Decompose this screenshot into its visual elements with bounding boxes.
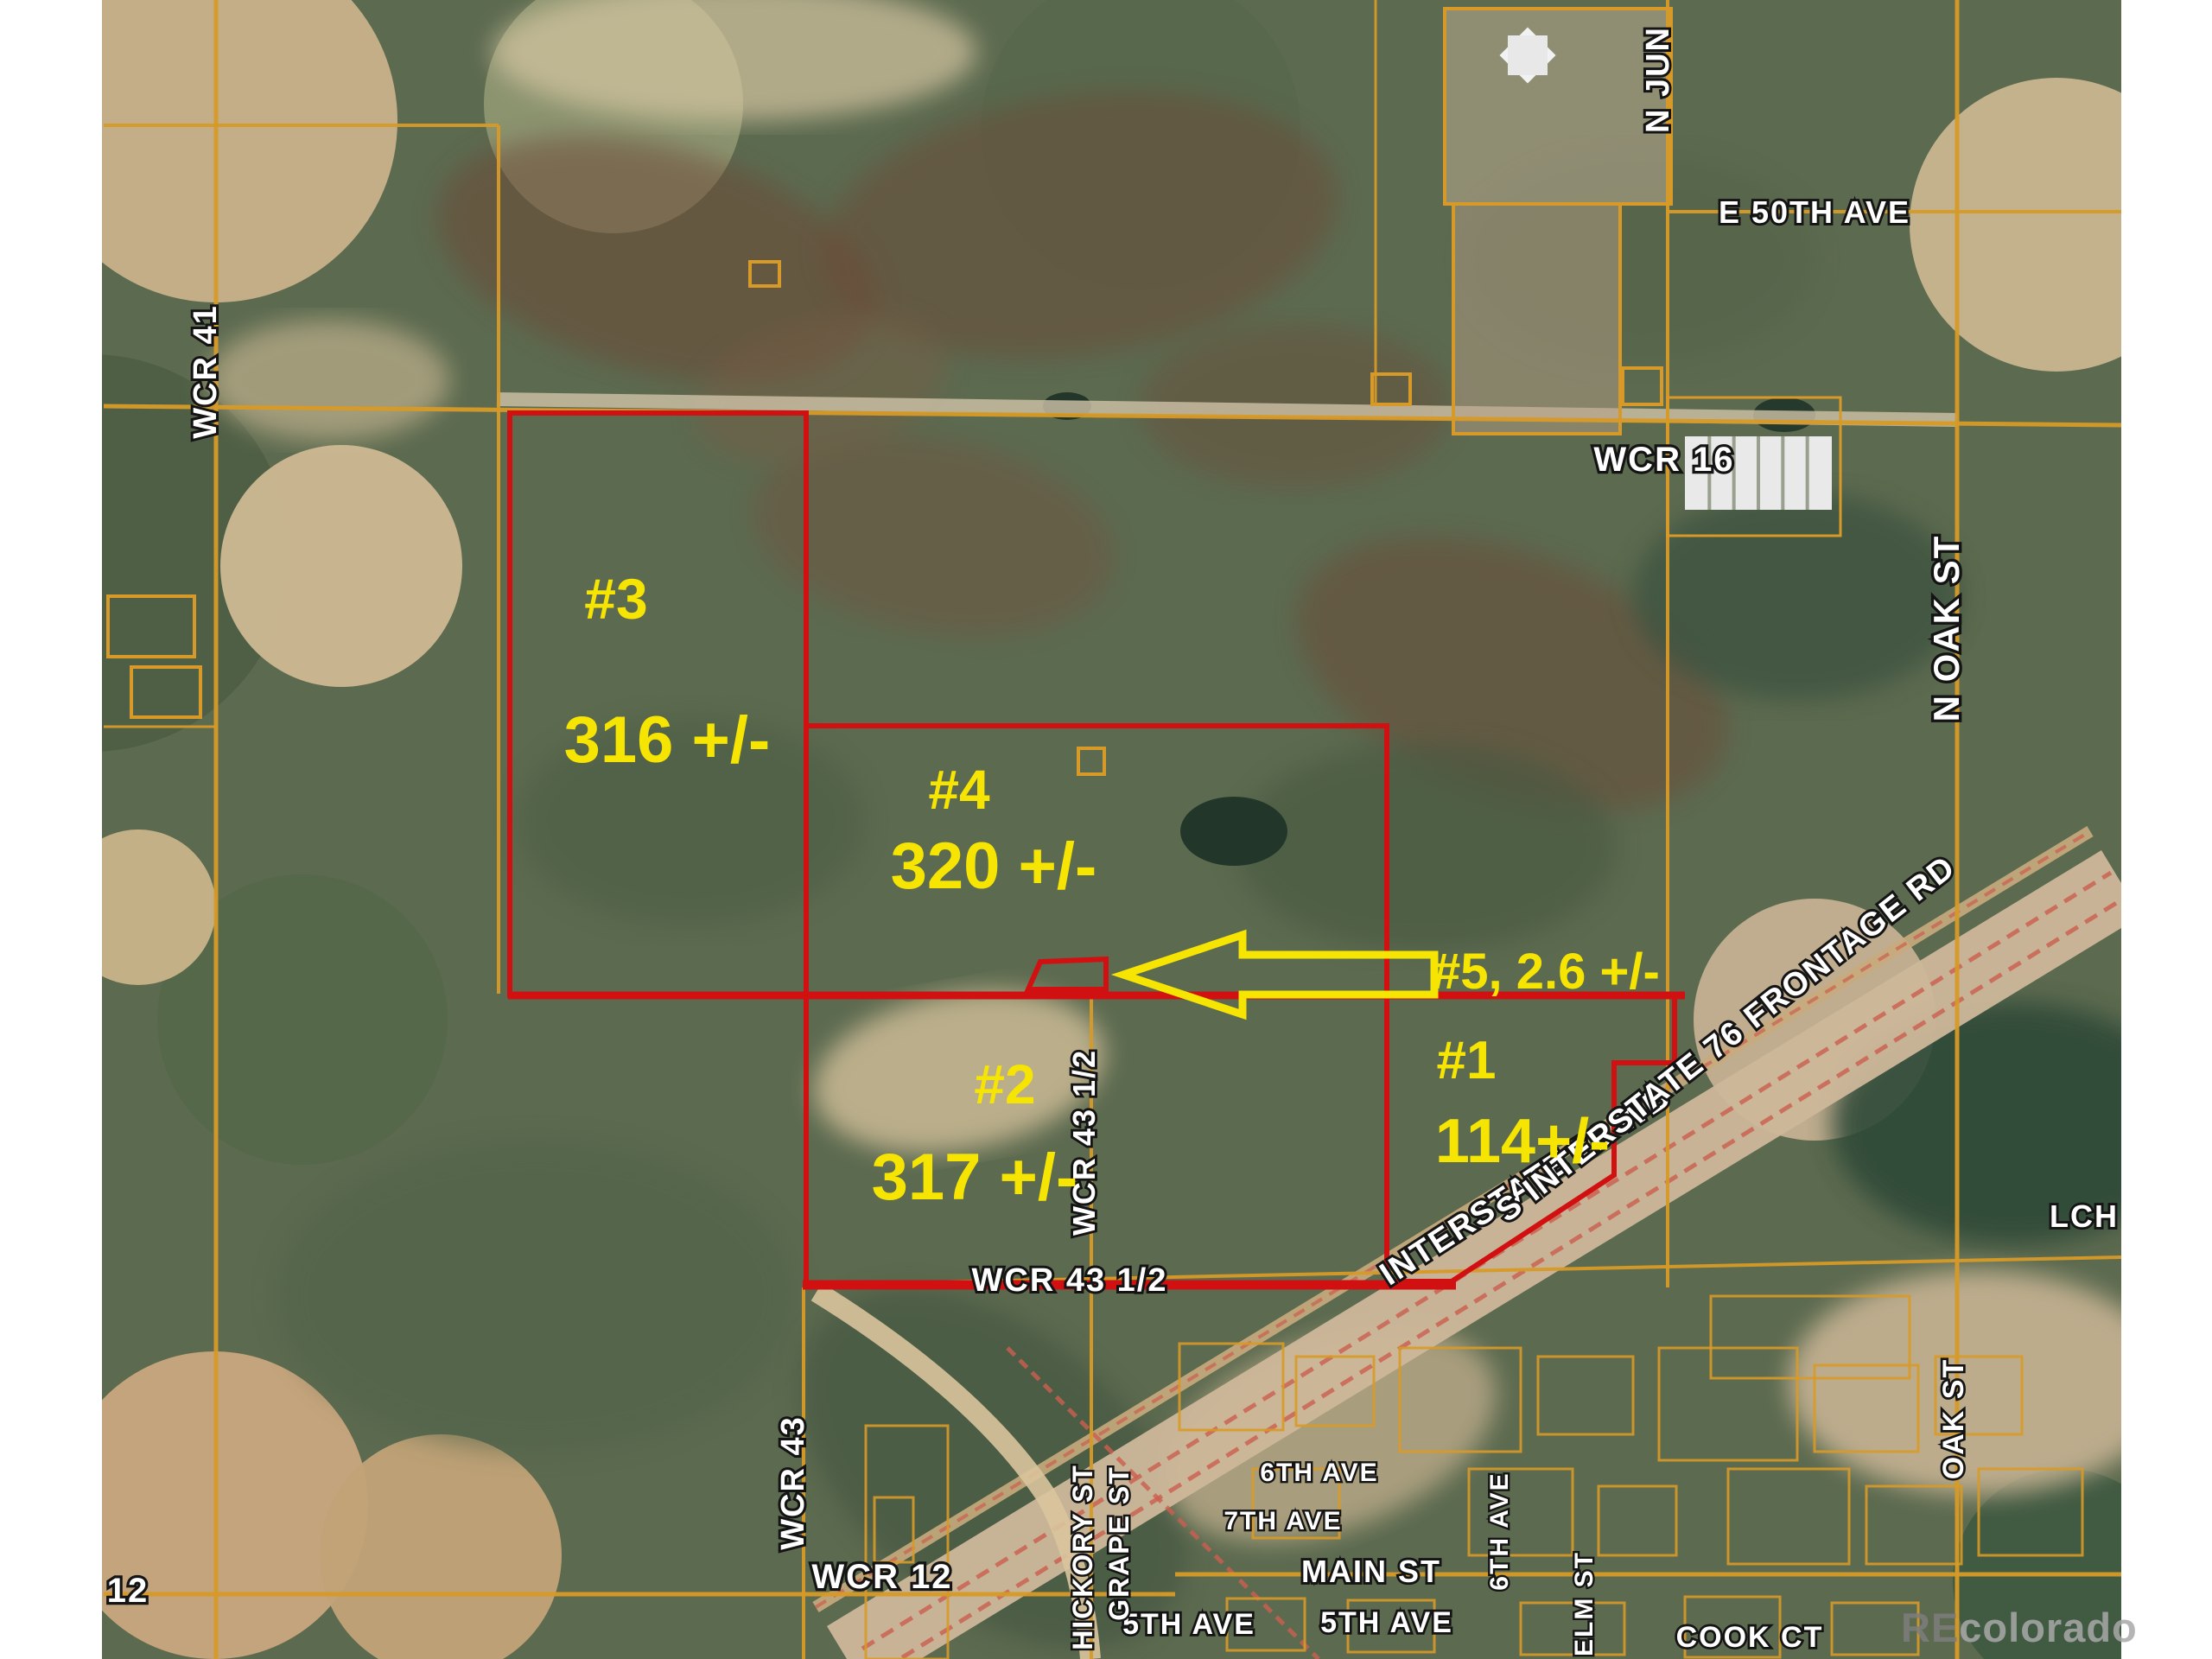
parcel-1-number-label: #1 bbox=[1437, 1031, 1497, 1090]
parcel-5-callout-label: #5, 2.6 +/- bbox=[1433, 944, 1660, 1000]
parcel-3-number-label: #3 bbox=[584, 567, 647, 631]
road-label: COOK CT bbox=[1676, 1621, 1824, 1654]
terrain-patch bbox=[207, 320, 449, 441]
road-label: WCR 12 bbox=[811, 1558, 952, 1596]
road-label: WCR 16 bbox=[1593, 441, 1734, 479]
watermark-colorado: colorado bbox=[1959, 1605, 2137, 1650]
road-label: N JUN bbox=[1640, 26, 1676, 133]
road-label: WCR 41 bbox=[188, 304, 224, 439]
road-label: E 50TH AVE bbox=[1719, 194, 1910, 230]
facility-compound bbox=[1445, 9, 1671, 204]
road-label: 6TH AVE bbox=[1260, 1459, 1378, 1487]
terrain-patch bbox=[1633, 493, 1961, 700]
parcel-2-number-label: #2 bbox=[974, 1053, 1035, 1116]
recolorado-watermark: REcolorado bbox=[1901, 1604, 2138, 1651]
road-label: WCR 43 1/2 bbox=[972, 1262, 1168, 1299]
road-label: ELM ST bbox=[1570, 1551, 1599, 1656]
road-label: 5TH AVE bbox=[1320, 1606, 1453, 1639]
parcel-1-acreage-label: 114+/- bbox=[1435, 1107, 1610, 1176]
road-label: MAIN ST bbox=[1301, 1554, 1441, 1589]
terrain-patch bbox=[1236, 743, 1616, 950]
road-label: 12 bbox=[107, 1572, 149, 1610]
facility-compound-lower bbox=[1453, 204, 1620, 434]
cross-building-2 bbox=[1508, 35, 1548, 75]
parcel-4-number-label: #4 bbox=[928, 759, 990, 821]
parcel-3-acreage-label: 316 +/- bbox=[564, 703, 771, 777]
terrain-patch bbox=[276, 1141, 795, 1452]
pond bbox=[1180, 797, 1287, 866]
parcel-4-acreage-label: 320 +/- bbox=[891, 829, 1097, 903]
road-label: 5TH AVE bbox=[1122, 1608, 1255, 1641]
road-label: 7TH AVE bbox=[1224, 1507, 1342, 1535]
road-label: N OAK ST bbox=[1926, 535, 1967, 722]
road-label: GRAPE ST bbox=[1103, 1465, 1135, 1621]
map-canvas: WCR 41WCR 16E 50TH AVEN JUNN OAK STOAK S… bbox=[102, 0, 2121, 1659]
road-label: LCH bbox=[2050, 1198, 2119, 1234]
parcel-2-acreage-label: 317 +/- bbox=[872, 1141, 1078, 1214]
watermark-re: RE bbox=[1901, 1605, 1959, 1650]
road-label: OAK ST bbox=[1937, 1358, 1970, 1479]
satellite-map: WCR 41WCR 16E 50TH AVEN JUNN OAK STOAK S… bbox=[102, 0, 2121, 1659]
road-label: 6TH AVE bbox=[1485, 1471, 1514, 1590]
pivot-field bbox=[220, 445, 462, 687]
listing-map-image: WCR 41WCR 16E 50TH AVEN JUNN OAK STOAK S… bbox=[0, 0, 2212, 1659]
road-label: WCR 43 bbox=[775, 1415, 811, 1550]
road-label: HICKORY ST bbox=[1067, 1464, 1098, 1650]
